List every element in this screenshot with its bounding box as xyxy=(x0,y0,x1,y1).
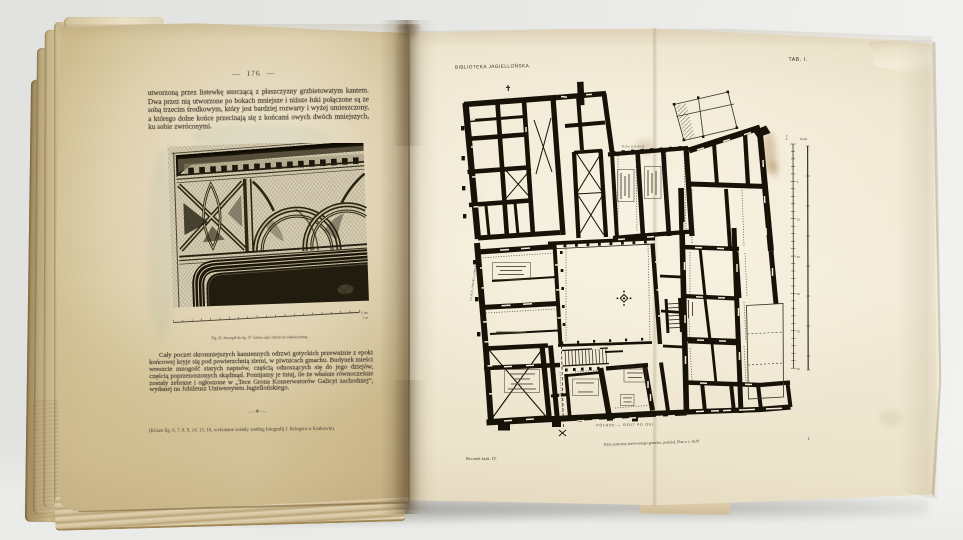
svg-text:10 sąż.: 10 sąż. xyxy=(800,138,808,141)
svg-text:20: 20 xyxy=(797,293,800,296)
svg-text:10: 10 xyxy=(797,219,800,222)
svg-text:5: 5 xyxy=(786,138,788,141)
svg-text:Ctm.: Ctm. xyxy=(361,311,368,315)
svg-text:ULICA JAGIELLOŃSKA: ULICA JAGIELLOŃSKA xyxy=(469,262,478,300)
svg-text:15: 15 xyxy=(797,256,800,259)
svg-text:1 m.: 1 m. xyxy=(362,316,369,320)
svg-text:POŁUDNIE: POŁUDNIE xyxy=(622,145,645,149)
svg-text:0: 0 xyxy=(786,135,788,138)
svg-text:5: 5 xyxy=(797,181,799,184)
svg-text:25: 25 xyxy=(797,331,800,334)
svg-text:30: 30 xyxy=(797,368,800,371)
